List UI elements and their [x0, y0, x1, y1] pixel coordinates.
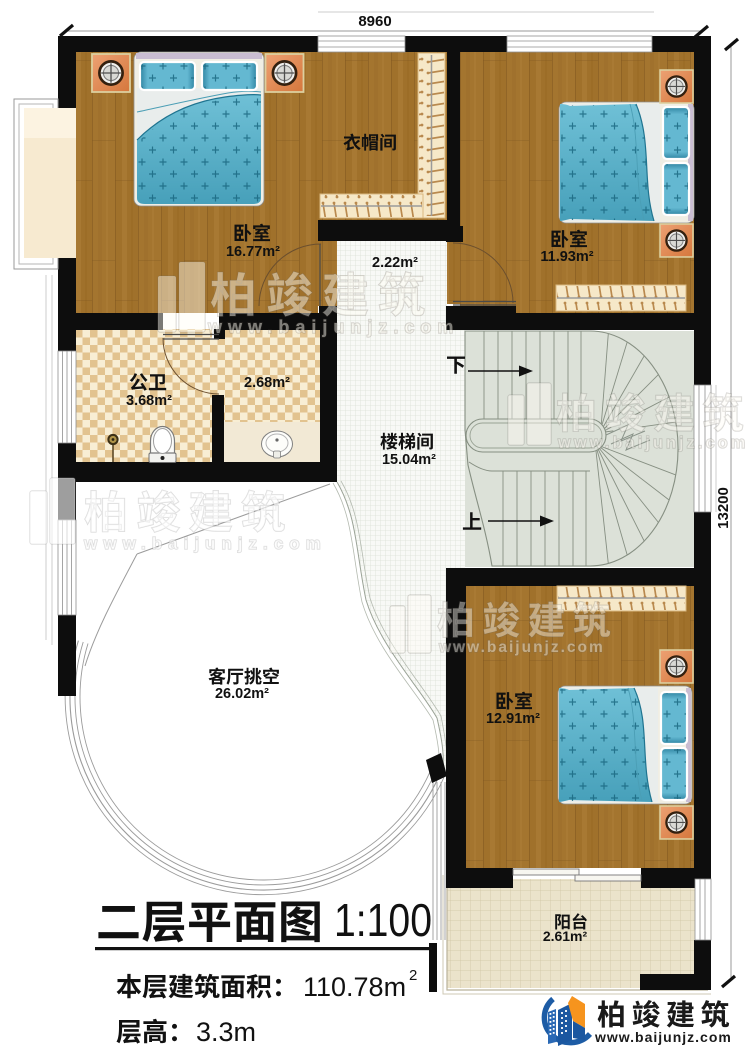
svg-text:12.91m²: 12.91m²	[486, 711, 540, 727]
svg-text:26.02m²: 26.02m²	[215, 686, 269, 702]
svg-text:2.61m²: 2.61m²	[543, 928, 588, 944]
svg-text:1:100: 1:100	[334, 894, 432, 946]
svg-text:3.3m: 3.3m	[196, 1017, 256, 1047]
svg-text:www.baijunjz.com: www.baijunjz.com	[438, 639, 605, 656]
svg-text:13200: 13200	[715, 487, 732, 529]
svg-text:www.baijunjz.com: www.baijunjz.com	[207, 317, 459, 337]
svg-text:www.baijunjz.com: www.baijunjz.com	[594, 1029, 732, 1045]
svg-text:www.baijunjz.com: www.baijunjz.com	[83, 534, 327, 553]
svg-text:2.22m²: 2.22m²	[372, 255, 418, 271]
svg-text:16.77m²: 16.77m²	[226, 244, 280, 260]
svg-text:110.78m: 110.78m	[303, 972, 406, 1002]
svg-text:11.93m²: 11.93m²	[540, 249, 593, 265]
svg-text:15.04m²: 15.04m²	[382, 452, 436, 468]
svg-text:2.68m²: 2.68m²	[244, 375, 290, 391]
svg-text:3.68m²: 3.68m²	[126, 393, 172, 409]
svg-text:www.baijunjz.com: www.baijunjz.com	[557, 434, 748, 452]
svg-text:8960: 8960	[358, 13, 391, 30]
svg-text:2: 2	[409, 967, 417, 984]
